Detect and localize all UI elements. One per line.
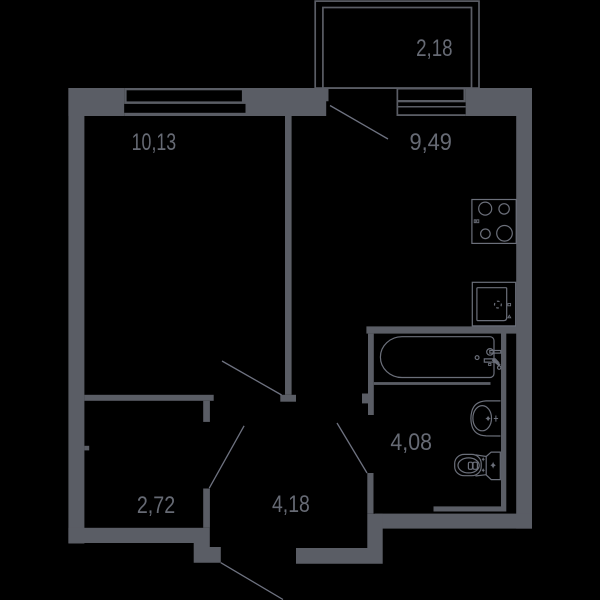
- svg-text:2,18: 2,18: [416, 35, 452, 62]
- svg-text:9,49: 9,49: [409, 128, 452, 155]
- svg-text:2,72: 2,72: [137, 491, 175, 518]
- svg-text:4,08: 4,08: [390, 428, 432, 455]
- svg-text:10,13: 10,13: [132, 130, 176, 156]
- svg-text:4,18: 4,18: [272, 490, 310, 517]
